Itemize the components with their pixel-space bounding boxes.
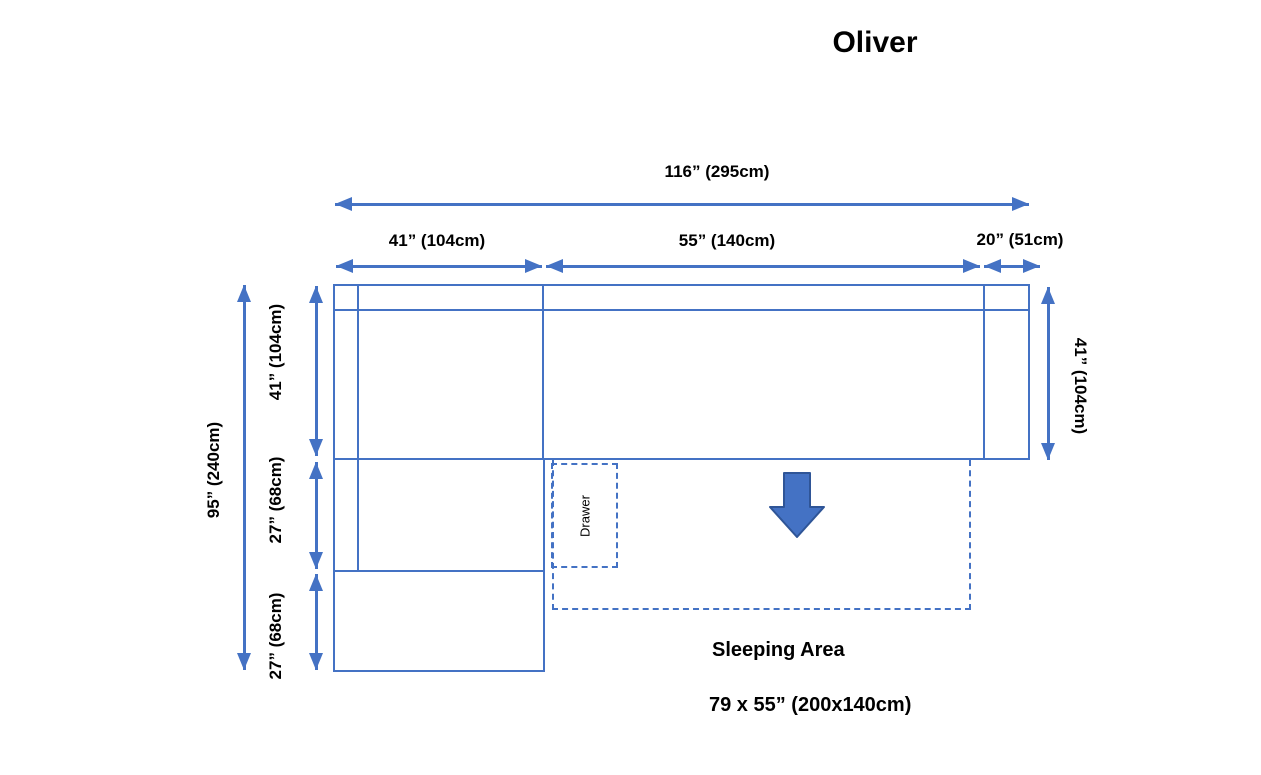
sofa-right-armrest-seam-line (983, 284, 985, 460)
diagram-title: Oliver (832, 26, 917, 60)
dimension-arrow-upper-depth (315, 286, 318, 456)
dimension-label-seat-width: 55” (140cm) (679, 231, 775, 251)
sleeping-area-outline (552, 460, 971, 610)
dimension-label-total-width: 116” (295cm) (665, 162, 770, 182)
dimension-label-lower-depth: 27” (68cm) (266, 593, 286, 680)
sofa-chaise-middle-outline (333, 458, 545, 572)
dimension-label-middle-depth: 27” (68cm) (266, 457, 286, 544)
dimension-arrow-lower-depth (315, 574, 318, 670)
dimension-arrow-armrest-width (984, 265, 1040, 268)
fold-down-arrow-icon (769, 472, 825, 538)
sleeping-area-size: 79 x 55” (200x140cm) (709, 694, 911, 717)
dimension-arrow-total-depth (243, 285, 246, 670)
dimension-label-chaise-width: 41” (104cm) (389, 231, 485, 251)
sleeping-area-title: Sleeping Area (712, 639, 845, 662)
dimension-arrow-right-depth (1047, 287, 1050, 460)
dimension-label-total-depth: 95” (240cm) (204, 422, 224, 518)
sofa-backrest-seam-line (333, 309, 1030, 311)
sofa-chaise-end-outline (333, 570, 545, 672)
sofa-dimension-diagram: Oliver 116” (295cm) 41” (104cm) 55” (140… (0, 0, 1261, 775)
dimension-label-armrest-width: 20” (51cm) (977, 230, 1064, 250)
dimension-arrow-chaise-width (336, 265, 542, 268)
dimension-arrow-total-width (335, 203, 1029, 206)
sofa-chaise-seam-line (542, 284, 544, 460)
dimension-arrow-middle-depth (315, 462, 318, 569)
dimension-label-right-depth: 41” (104cm) (1070, 338, 1090, 434)
dimension-arrow-seat-width (546, 265, 980, 268)
dimension-label-upper-depth: 41” (104cm) (266, 304, 286, 400)
